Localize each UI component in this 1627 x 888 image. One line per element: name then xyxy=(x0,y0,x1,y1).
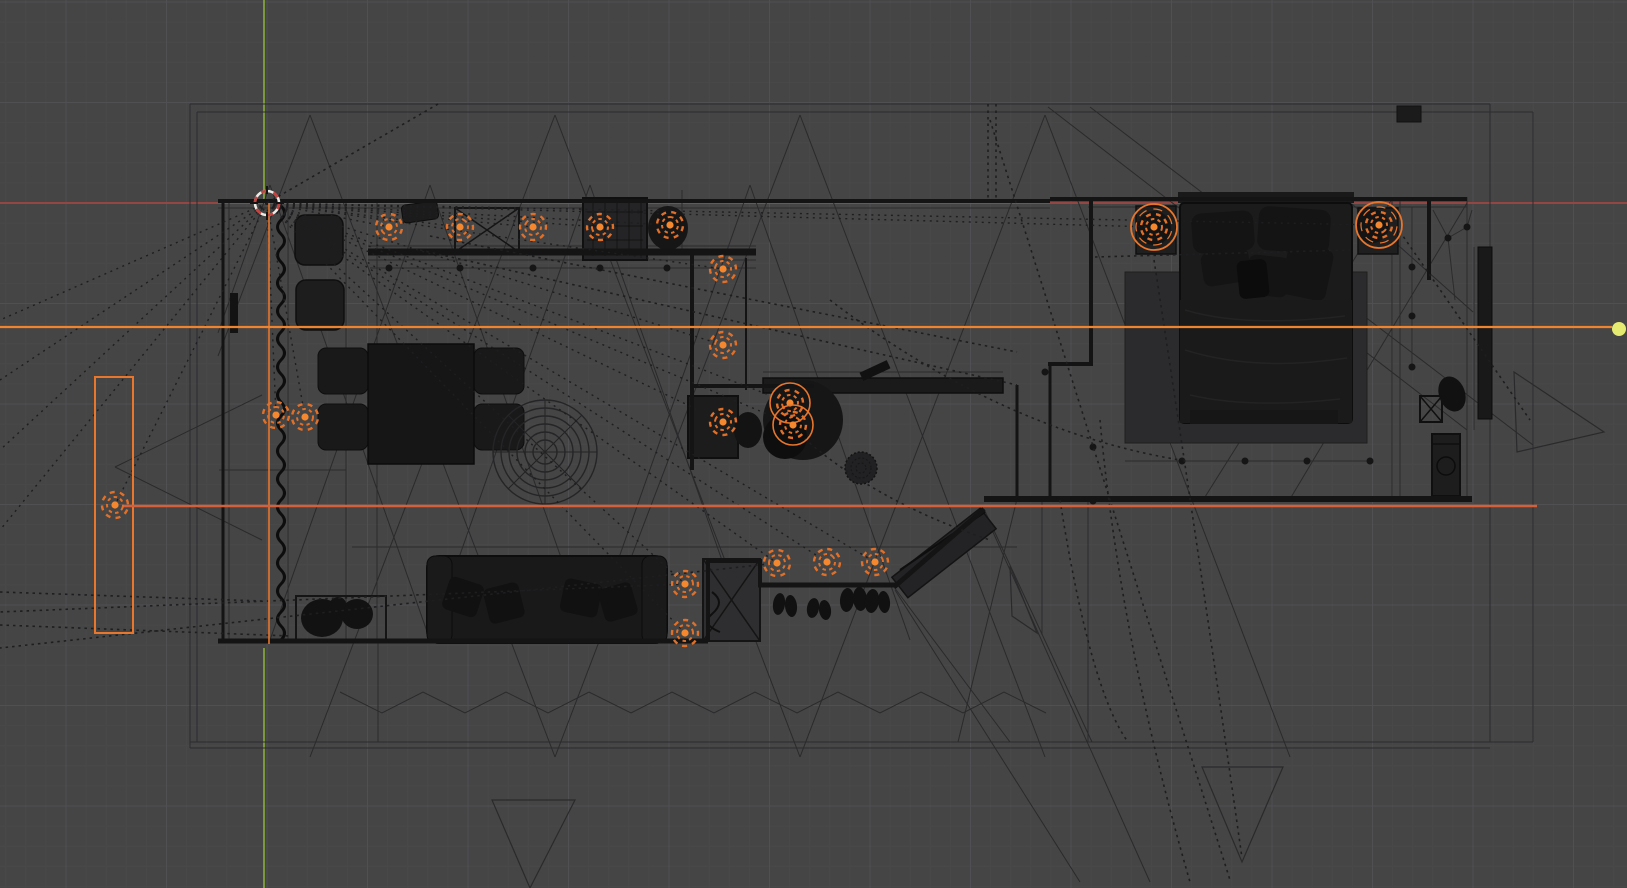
point-light-widget[interactable] xyxy=(258,397,295,434)
viewport-window xyxy=(0,0,1627,888)
point-light-widget[interactable] xyxy=(375,213,404,242)
shoe[interactable] xyxy=(805,597,820,619)
bed-foot-bench[interactable] xyxy=(1190,410,1338,424)
hallway-dresser[interactable] xyxy=(892,508,996,597)
dotted-sphere[interactable] xyxy=(845,452,877,484)
bed-pillow[interactable] xyxy=(1236,259,1270,300)
armchair[interactable] xyxy=(296,280,344,330)
dining-chair[interactable] xyxy=(318,348,368,394)
bed-pillow[interactable] xyxy=(1191,210,1256,254)
sun-lamp-origin-dot[interactable] xyxy=(1612,322,1626,336)
sofa-arm[interactable] xyxy=(642,556,667,643)
viewport-canvas[interactable] xyxy=(0,0,1627,888)
door-slab[interactable] xyxy=(1478,247,1492,419)
shoe[interactable] xyxy=(864,588,881,614)
point-light-widget[interactable] xyxy=(518,212,548,242)
kitchen-cabinet[interactable] xyxy=(688,396,738,458)
shoe[interactable] xyxy=(839,587,855,612)
sink[interactable] xyxy=(401,201,439,224)
point-light-widget[interactable] xyxy=(814,549,840,575)
shoe[interactable] xyxy=(784,594,798,617)
point-light-widget[interactable] xyxy=(706,252,740,286)
plant-side[interactable] xyxy=(734,412,762,448)
shoe[interactable] xyxy=(772,592,787,615)
point-light-widget[interactable] xyxy=(706,328,740,362)
corner-widget[interactable] xyxy=(1397,106,1421,122)
shoe[interactable] xyxy=(877,590,891,613)
armchair[interactable] xyxy=(295,215,343,265)
dining-chair[interactable] xyxy=(474,348,524,394)
dining-chair[interactable] xyxy=(318,404,368,450)
